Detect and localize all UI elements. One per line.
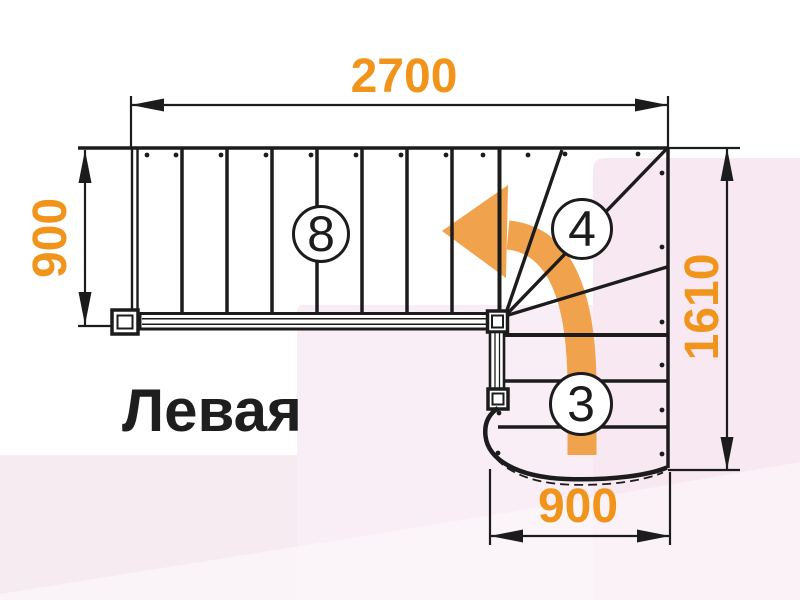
dimension-top-label: 2700 bbox=[351, 50, 458, 103]
background-shapes bbox=[0, 158, 800, 600]
winder-count-badge: 4 bbox=[553, 200, 612, 259]
upper-flight-count-badge: 8 bbox=[294, 206, 349, 262]
dimension-left: 900 bbox=[24, 150, 112, 326]
lower-flight-count: 3 bbox=[567, 376, 595, 432]
plan-title: Левая bbox=[122, 377, 302, 444]
upper-stringer-band bbox=[140, 314, 497, 330]
dimension-left-label: 900 bbox=[24, 198, 77, 278]
stair-plan-diagram: 8 4 3 2700 900 bbox=[0, 0, 800, 600]
dimension-top: 2700 bbox=[131, 50, 668, 148]
dim-arrow-icon bbox=[79, 292, 92, 325]
dim-arrow-icon bbox=[131, 99, 164, 112]
winder-count: 4 bbox=[568, 201, 596, 257]
dimension-right-label: 1610 bbox=[676, 254, 729, 361]
left-newel-post-inner bbox=[118, 316, 133, 329]
lower-flight-count-badge: 3 bbox=[551, 374, 612, 435]
dim-arrow-icon bbox=[79, 150, 92, 183]
upper-flight-count: 8 bbox=[307, 206, 335, 262]
corner-newel-post-inner bbox=[492, 316, 503, 328]
stair-plan-page: 8 4 3 2700 900 bbox=[0, 0, 800, 600]
lower-stringer-band bbox=[490, 332, 504, 390]
dim-arrow-icon bbox=[635, 99, 668, 112]
lower-newel-post-inner bbox=[493, 394, 504, 405]
dimension-bottom-label: 900 bbox=[538, 480, 618, 533]
